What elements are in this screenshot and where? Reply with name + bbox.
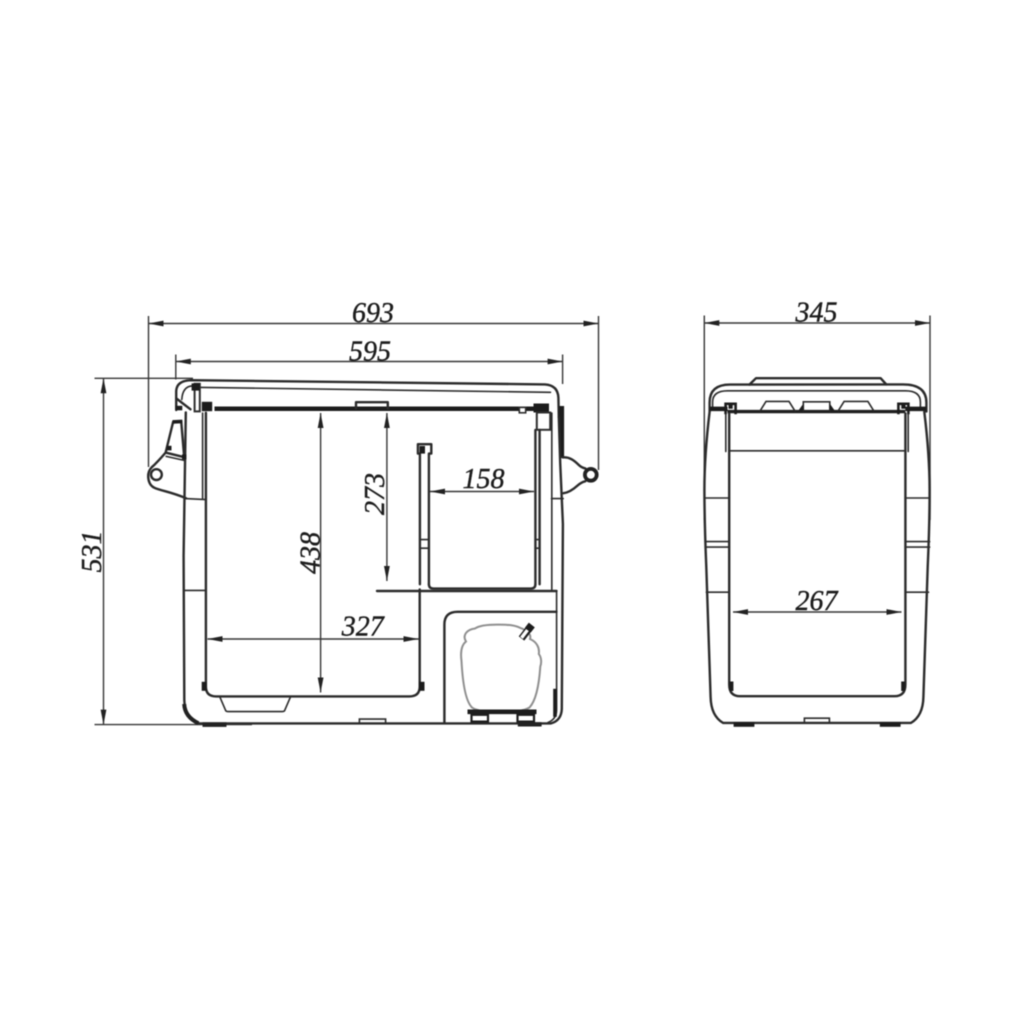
svg-text:345: 345 [795, 298, 838, 329]
svg-text:267: 267 [796, 586, 839, 617]
svg-text:158: 158 [463, 464, 505, 495]
svg-text:438: 438 [296, 532, 327, 574]
svg-text:693: 693 [352, 298, 394, 329]
svg-text:595: 595 [349, 336, 391, 367]
svg-text:327: 327 [341, 612, 385, 643]
svg-text:273: 273 [360, 473, 391, 515]
svg-text:531: 531 [77, 531, 108, 573]
